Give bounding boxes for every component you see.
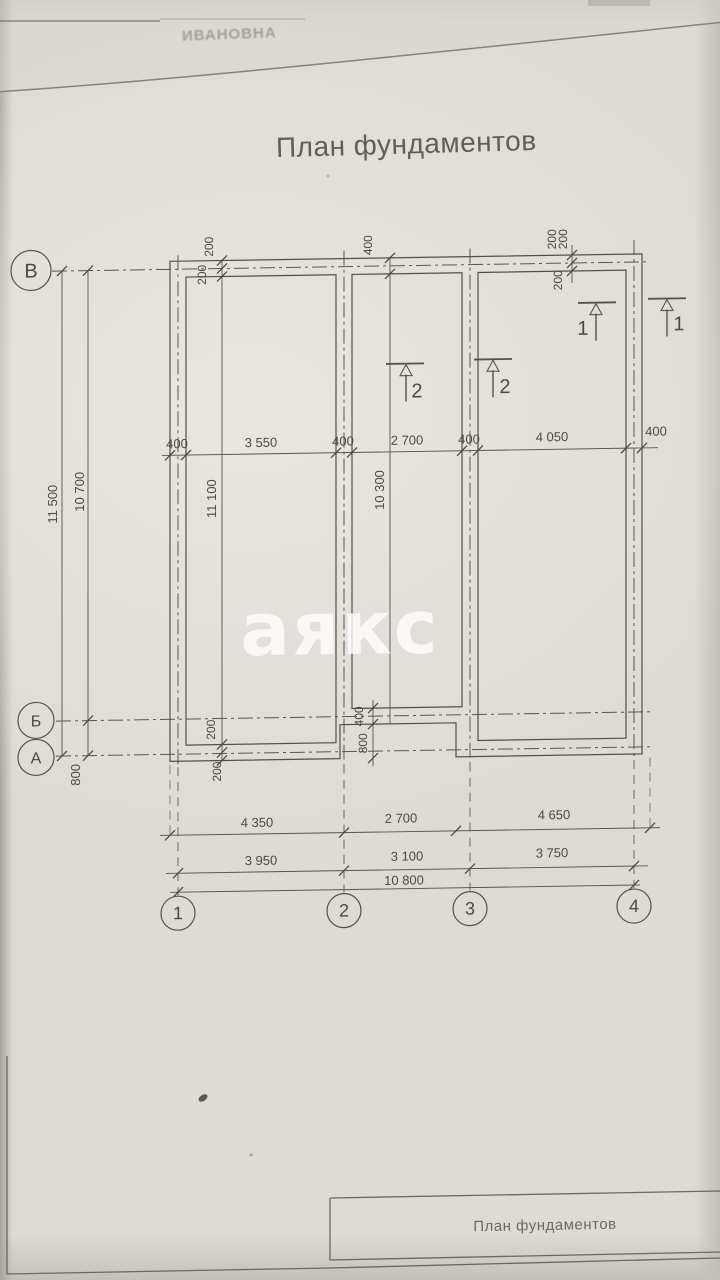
offset-label: 200 bbox=[195, 264, 209, 285]
photographed-blueprint-page: ИВАНОВНА План фундаментов bbox=[0, 0, 720, 1280]
axis-label: А bbox=[31, 750, 42, 767]
dim-label: 2 700 bbox=[391, 432, 424, 448]
section-label: 2 bbox=[499, 376, 510, 398]
dim-label: 400 bbox=[166, 436, 188, 451]
dim-label: 4 350 bbox=[241, 815, 274, 831]
section-labels: 2 2 1 1 bbox=[411, 313, 684, 402]
dimension-labels: 11 500 10 700 800 400 3 550 400 2 700 40… bbox=[45, 227, 667, 893]
axis-line-V bbox=[52, 262, 650, 271]
bay-3-inner bbox=[478, 270, 626, 740]
watermark: аякс bbox=[239, 585, 440, 674]
offset-label: 200 bbox=[204, 719, 218, 740]
axis-label: Б bbox=[31, 713, 41, 730]
axis-centerlines bbox=[52, 240, 650, 769]
dim-label: 3 950 bbox=[245, 853, 278, 869]
dim-label: 400 bbox=[458, 431, 480, 446]
axis-label: 1 bbox=[173, 903, 183, 923]
sheet-fold bbox=[0, 0, 720, 92]
dimension-ticks bbox=[57, 249, 655, 899]
sheet-frame bbox=[7, 1056, 720, 1274]
offset-label: 200 bbox=[210, 761, 224, 782]
dim-label: 3 750 bbox=[536, 845, 569, 861]
foundation-walls bbox=[170, 254, 642, 761]
dim-label: 2 700 bbox=[385, 810, 418, 826]
axis-label: 3 bbox=[465, 899, 475, 919]
dim-label: 3 100 bbox=[391, 848, 424, 864]
dim-label: 800 bbox=[68, 764, 83, 786]
dim-label: 400 bbox=[645, 424, 667, 439]
dim-label: 10 800 bbox=[384, 872, 424, 888]
section-markers bbox=[386, 298, 686, 402]
offset-label: 200 bbox=[551, 270, 565, 291]
axis-label: 4 bbox=[629, 896, 639, 916]
offset-label: 200 bbox=[202, 236, 216, 257]
dim-label: 11 500 bbox=[45, 485, 60, 524]
dim-label: 400 bbox=[332, 433, 354, 448]
section-label: 1 bbox=[673, 313, 684, 335]
outer-contour bbox=[170, 254, 642, 761]
dim-label: 10 300 bbox=[372, 470, 387, 510]
dim-label: 4 650 bbox=[538, 807, 571, 823]
axis-label: 2 bbox=[339, 901, 349, 921]
cropped-text-smudge bbox=[588, 0, 650, 6]
section-label: 1 bbox=[577, 318, 588, 340]
offset-label: 400 bbox=[361, 235, 375, 256]
dim-label: 10 700 bbox=[72, 472, 87, 512]
frame-bottom bbox=[7, 1258, 720, 1274]
title-block-label: План фундаментов bbox=[473, 1216, 617, 1235]
offset-label: 400 bbox=[352, 706, 366, 727]
dimension-lines bbox=[62, 244, 660, 894]
axis-label: В bbox=[24, 260, 37, 282]
offset-label: 800 bbox=[356, 733, 370, 754]
dim-label: 4 050 bbox=[536, 429, 569, 445]
offset-label: 200 bbox=[556, 229, 570, 250]
dim-label: 11 100 bbox=[204, 479, 219, 518]
dim-label: 3 550 bbox=[245, 435, 278, 451]
section-label: 2 bbox=[411, 380, 422, 402]
